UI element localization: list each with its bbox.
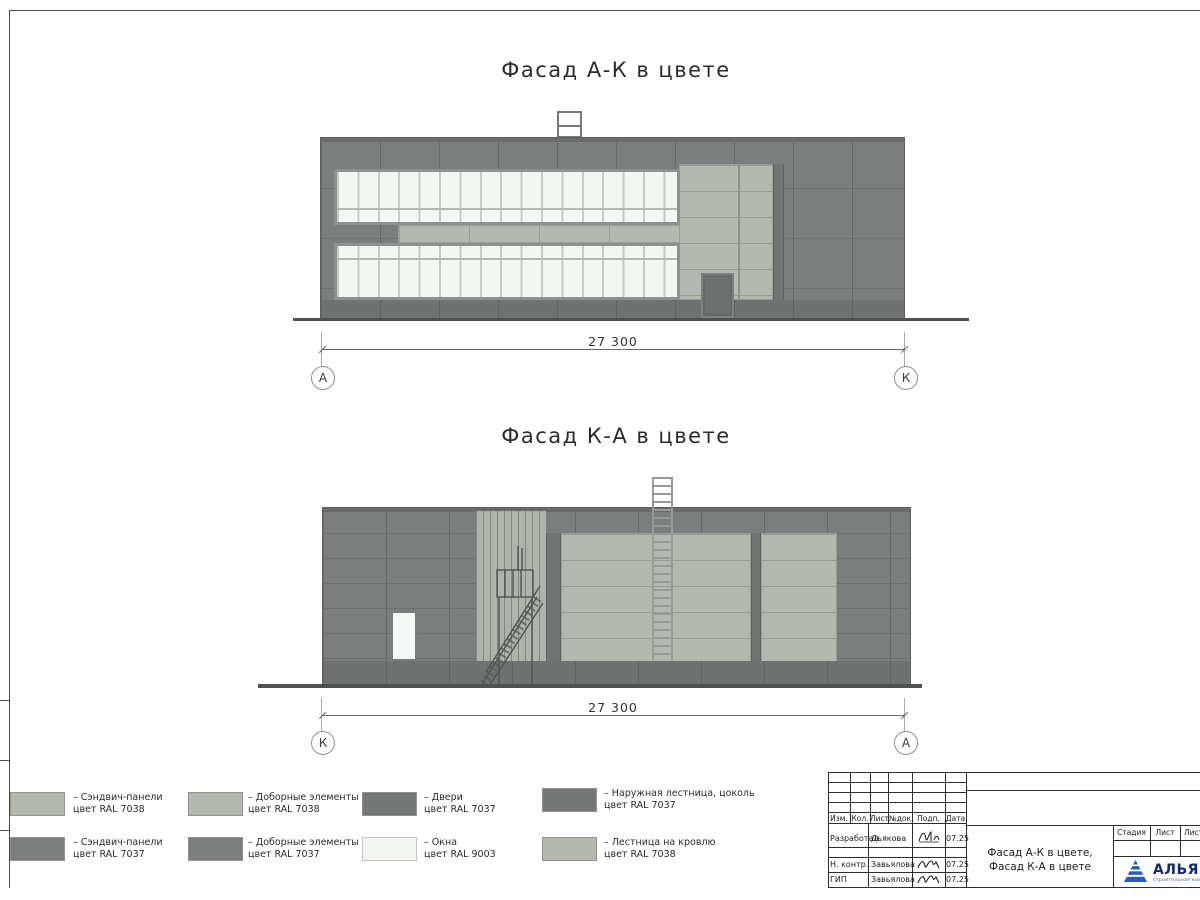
sheet-frame-top <box>9 10 1200 11</box>
upper-window-band <box>334 169 680 225</box>
tb-header-data: Дата <box>945 814 966 823</box>
tb-doc-title: Фасад А-К в цвете, Фасад К-А в цвете <box>968 846 1112 874</box>
tb-header-izm: Изм. <box>828 814 850 823</box>
panel-joint <box>738 165 740 299</box>
legend-swatch <box>542 788 597 812</box>
legend-swatch <box>188 837 243 861</box>
tb-line <box>912 772 913 888</box>
small-window <box>391 611 417 661</box>
company-logo-icon <box>1124 860 1147 882</box>
axis-marker-k: К <box>311 731 335 755</box>
tb-line <box>828 792 966 793</box>
plinth-band <box>321 300 904 319</box>
legend-swatch <box>188 792 243 816</box>
dark-divider-strip <box>773 164 784 300</box>
dimension-value: 27 300 <box>563 334 663 349</box>
drawing-sheet: Фасад А-К в цвете <box>0 0 1200 900</box>
tb-line <box>1113 856 1200 857</box>
dimension-value: 27 300 <box>563 700 663 715</box>
axis-marker-a: А <box>311 366 335 390</box>
roof-ladder <box>652 477 673 660</box>
axis-marker-k: К <box>894 366 918 390</box>
facade-ka-building <box>322 507 911 685</box>
dark-divider-strip <box>751 533 761 665</box>
external-staircase <box>474 544 552 688</box>
legend-label: – Окнацвет RAL 9003 <box>424 837 496 860</box>
legend-swatch <box>10 792 65 816</box>
sheet-frame-left <box>9 10 10 888</box>
legend-swatch <box>362 792 417 816</box>
tb-date: 07.25 <box>946 860 969 869</box>
dimension-line <box>322 715 905 716</box>
tb-sheet-header: Лист <box>1150 828 1180 837</box>
light-panel-field <box>761 533 837 665</box>
facade-ak-building <box>320 137 905 319</box>
tb-line <box>828 782 966 783</box>
axis-letter: К <box>319 736 328 750</box>
tb-line <box>966 825 1200 826</box>
legend-label: – Сэндвич-панелицвет RAL 7038 <box>73 792 163 815</box>
legend-swatch <box>10 837 65 861</box>
facade-ak-title: Фасад А-К в цвете <box>446 58 786 82</box>
tb-date: 07.25 <box>946 834 969 843</box>
axis-letter: К <box>902 371 911 385</box>
axis-marker-a: А <box>894 731 918 755</box>
legend-swatch <box>542 837 597 861</box>
dimension-line <box>322 349 905 350</box>
tb-line <box>828 872 966 873</box>
tb-line <box>828 857 966 858</box>
tb-sheets-header: Листов <box>1180 828 1200 837</box>
roof-coping <box>321 138 904 142</box>
window-transom-panes <box>337 210 677 222</box>
tb-header-doc: №док <box>888 814 912 823</box>
legend-label: – Лестница на кровлюцвет RAL 7038 <box>604 837 716 860</box>
tb-date: 07.25 <box>946 875 969 884</box>
tb-line <box>1113 840 1200 841</box>
signature-scribble <box>916 827 942 845</box>
sheet-fold-tick <box>0 760 9 761</box>
tb-role: ГИП <box>830 875 847 884</box>
window-panes <box>337 172 677 208</box>
legend-label: – Дверицвет RAL 7037 <box>424 792 496 815</box>
company-logo-text: АЛЬЯНС <box>1153 862 1200 878</box>
roof-hatch-divider <box>559 125 580 127</box>
tb-line <box>945 772 946 888</box>
signature-scribble <box>916 873 942 886</box>
tb-line <box>828 823 966 824</box>
window-transom-panes <box>337 246 677 258</box>
sheet-fold-tick <box>0 700 9 701</box>
tb-person-name: Завьялова <box>871 860 915 869</box>
tb-header-kol: Кол. <box>850 814 870 823</box>
lower-window-band <box>334 243 680 300</box>
axis-letter: А <box>319 371 327 385</box>
tb-line <box>828 812 966 813</box>
facade-ka-title: Фасад К-А в цвете <box>446 424 786 448</box>
tb-stage-header: Стадия <box>1113 828 1150 837</box>
legend-label: – Наружная лестница, цокольцвет RAL 7037 <box>604 788 755 811</box>
tb-line <box>966 790 1200 791</box>
tb-line <box>828 802 966 803</box>
tb-person-name: Завьялова <box>871 875 915 884</box>
sheet-fold-tick <box>0 830 9 831</box>
tb-line <box>828 847 966 848</box>
tb-header-podp: Подп. <box>912 814 945 823</box>
tb-line <box>868 823 869 888</box>
signature-scribble <box>916 858 942 871</box>
tb-header-list: Лист <box>870 814 888 823</box>
tb-person-name: Дьякова <box>871 834 906 843</box>
ground-line <box>258 684 922 688</box>
legend-label: – Доборные элементыцвет RAL 7037 <box>248 837 359 860</box>
legend-swatch <box>362 837 417 861</box>
roof-coping <box>323 508 910 512</box>
ground-line <box>293 318 969 321</box>
plinth-band <box>323 661 910 685</box>
infill-band <box>398 225 680 243</box>
axis-letter: А <box>902 736 910 750</box>
roof-hatch <box>557 111 582 138</box>
legend-label: – Сэндвич-панелицвет RAL 7037 <box>73 837 163 860</box>
tb-role: Н. контр. <box>830 860 868 869</box>
legend-label: – Доборные элементыцвет RAL 7038 <box>248 792 359 815</box>
window-panes <box>337 260 677 297</box>
company-logo-tagline: строительная компания <box>1153 878 1200 883</box>
entrance-door <box>701 273 734 318</box>
